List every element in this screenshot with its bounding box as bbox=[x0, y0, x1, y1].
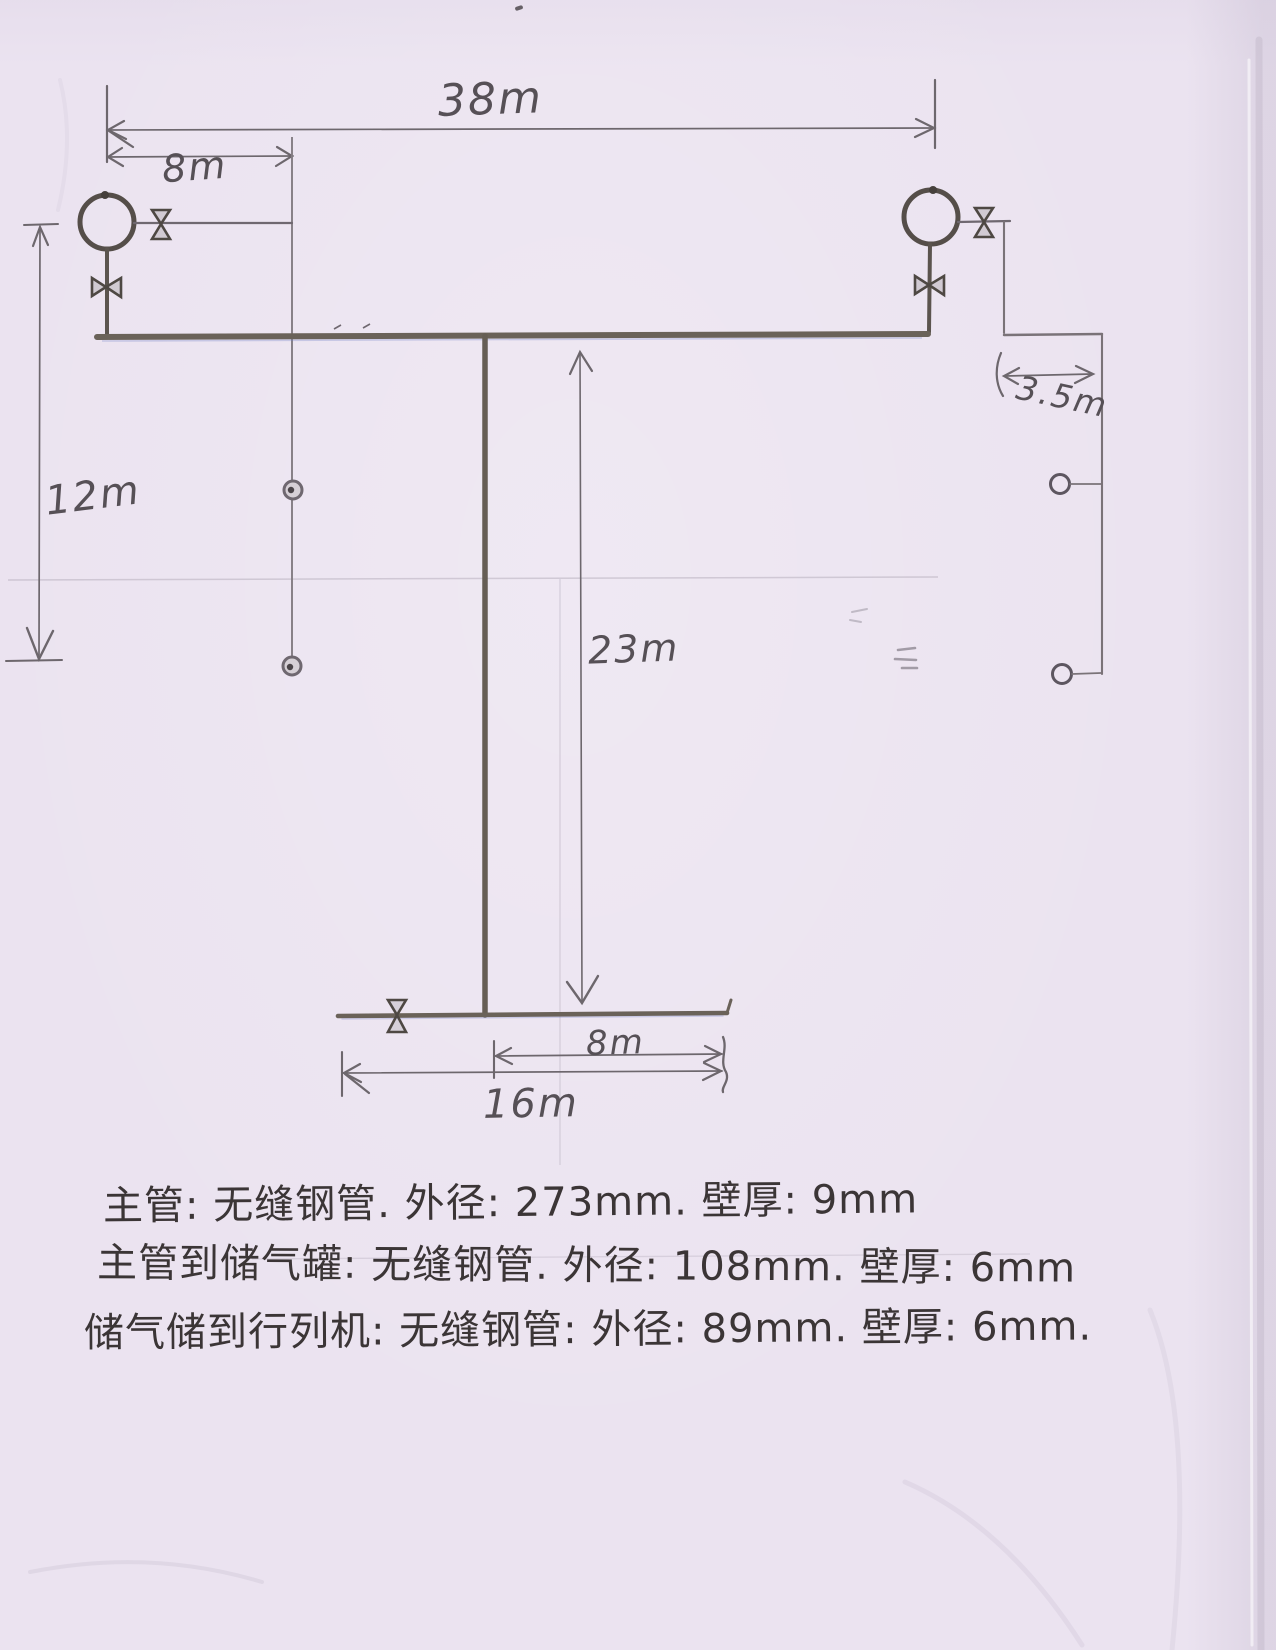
dim-12m-label: 12m bbox=[43, 470, 143, 521]
construction-lines bbox=[8, 577, 1030, 1259]
outlet-lower bbox=[283, 657, 301, 675]
dim-38m-label: 38m bbox=[437, 76, 543, 124]
spec-note-line-2: 主管到储气罐: 无缝钢管. 外径: 108mm. 壁厚: 6mm bbox=[97, 1243, 1076, 1288]
piping-diagram bbox=[0, 0, 1276, 1650]
paper-artifacts bbox=[30, 5, 1261, 1650]
right-branch-line bbox=[1004, 222, 1102, 684]
outlet-right-lower bbox=[1053, 665, 1102, 684]
valve-icon bbox=[152, 210, 170, 239]
left-branch-line bbox=[283, 137, 302, 675]
dim-23m-label: 23m bbox=[587, 628, 680, 669]
bottom-branch-pipe bbox=[338, 1000, 731, 1032]
outlet-upper bbox=[284, 481, 302, 499]
left-air-tank bbox=[80, 191, 292, 335]
dim-8m-bottom-label: 8m bbox=[585, 1025, 645, 1061]
dim-12m-lines bbox=[6, 224, 62, 661]
dim-16m-label: 16m bbox=[483, 1083, 580, 1125]
outlet-right-upper bbox=[1051, 475, 1102, 494]
spec-note-line-3: 储气储到行列机: 无缝钢管: 外径: 89mm. 壁厚: 6mm. bbox=[84, 1306, 1092, 1353]
main-header-pipe bbox=[97, 324, 928, 341]
spec-note-line-1: 主管: 无缝钢管. 外径: 273mm. 壁厚: 9mm bbox=[103, 1179, 918, 1226]
dim-23m-lines bbox=[567, 352, 598, 1003]
right-air-tank bbox=[904, 186, 1010, 332]
scanned-sketch-page: 38m 8m 12m 23m 3.5m 8m 16m 主管: 无缝钢管. 外径:… bbox=[0, 0, 1276, 1650]
dim-8m-top-label: 8m bbox=[161, 146, 229, 188]
